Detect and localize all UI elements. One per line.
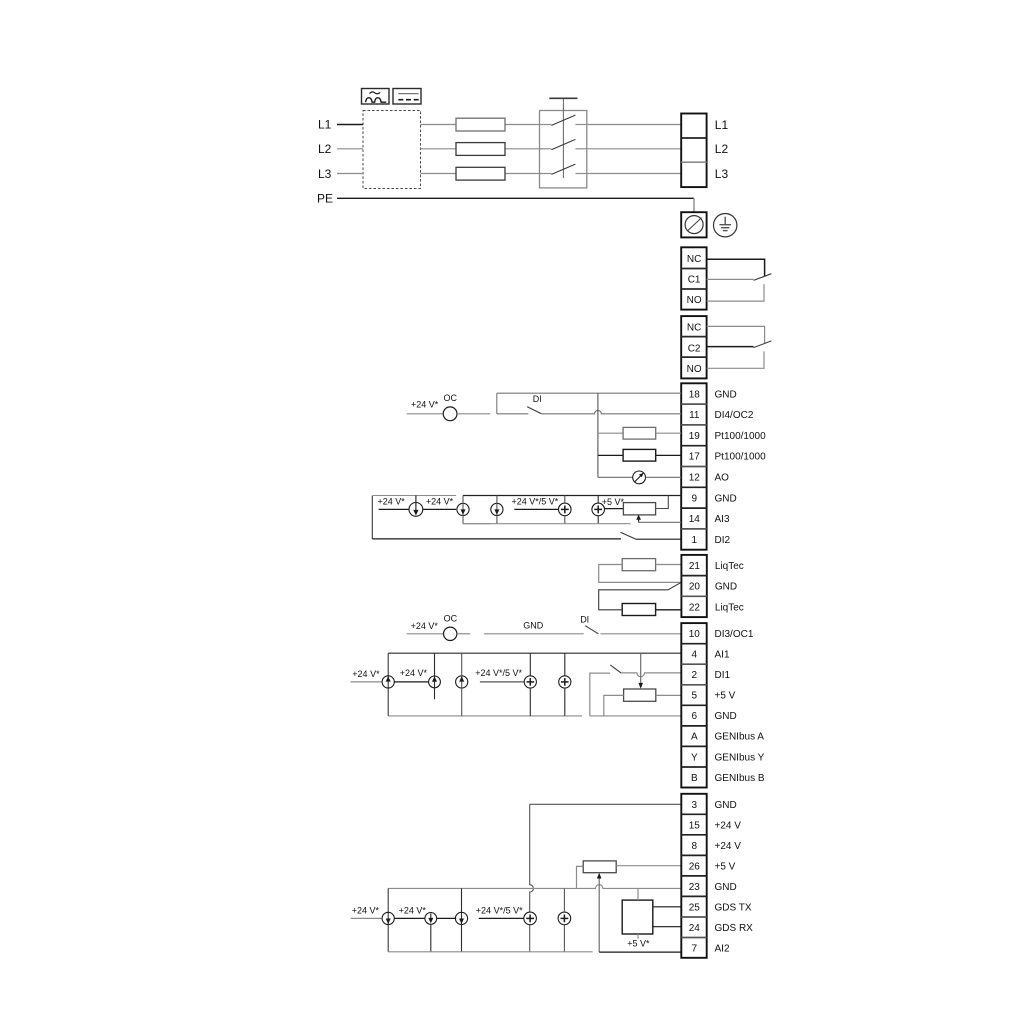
svg-text:21: 21 [689,561,701,572]
svg-text:+5 V: +5 V [715,691,736,702]
svg-text:25: 25 [689,902,701,913]
svg-text:L3: L3 [715,167,729,181]
svg-text:GENIbus B: GENIbus B [715,773,765,784]
svg-text:L1: L1 [715,118,729,132]
svg-text:L1: L1 [318,118,332,132]
svg-text:+24 V: +24 V [715,820,742,831]
svg-text:+24 V*: +24 V* [352,906,380,916]
svg-text:DI4/OC2: DI4/OC2 [715,410,754,421]
svg-text:9: 9 [692,493,698,504]
svg-text:11: 11 [689,410,700,421]
svg-text:L2: L2 [715,142,729,156]
svg-text:+24 V*: +24 V* [399,906,427,916]
svg-text:NO: NO [687,295,702,306]
svg-text:19: 19 [689,431,701,442]
svg-text:DI3/OC1: DI3/OC1 [715,629,754,640]
svg-text:L2: L2 [318,142,332,156]
svg-text:B: B [691,773,698,784]
svg-text:LiqTec: LiqTec [715,561,744,572]
svg-text:C1: C1 [688,275,701,286]
svg-text:18: 18 [689,389,701,400]
svg-text:2: 2 [692,670,698,681]
svg-text:+24 V*: +24 V* [400,668,428,678]
svg-text:22: 22 [689,602,701,613]
svg-text:GND: GND [715,389,737,400]
svg-text:6: 6 [692,711,698,722]
svg-text:1: 1 [692,535,698,546]
svg-text:+24 V*/5 V*: +24 V*/5 V* [476,906,523,916]
svg-text:GENIbus A: GENIbus A [715,732,765,743]
svg-text:DI: DI [533,394,542,404]
svg-text:GDS RX: GDS RX [715,923,754,934]
svg-text:3: 3 [692,800,698,811]
svg-text:+5 V*: +5 V* [627,939,650,949]
svg-text:GND: GND [715,493,737,504]
svg-text:C2: C2 [688,343,701,354]
svg-text:DI1: DI1 [715,670,731,681]
svg-text:DI2: DI2 [715,535,731,546]
svg-text:GND: GND [715,882,737,893]
svg-text:AO: AO [715,473,730,484]
svg-text:OC: OC [444,613,458,623]
svg-text:DI: DI [580,615,589,625]
svg-text:A: A [691,732,698,743]
svg-text:OC: OC [444,393,458,403]
svg-text:24: 24 [689,923,701,934]
svg-text:GND: GND [715,800,737,811]
svg-text:Pt100/1000: Pt100/1000 [715,431,767,442]
svg-text:Pt100/1000: Pt100/1000 [715,452,767,463]
svg-text:7: 7 [692,944,698,955]
svg-text:+24 V*/5 V*: +24 V*/5 V* [512,497,559,507]
svg-text:AI3: AI3 [715,514,730,525]
svg-text:26: 26 [689,861,701,872]
svg-text:10: 10 [689,629,701,640]
svg-text:15: 15 [689,820,701,831]
svg-text:+5 V: +5 V [715,861,736,872]
svg-text:AI2: AI2 [715,944,730,955]
svg-text:L3: L3 [318,167,332,181]
svg-text:+24 V*: +24 V* [411,400,439,410]
svg-text:GND: GND [523,620,544,630]
svg-text:14: 14 [689,514,701,525]
svg-text:+5 V*: +5 V* [602,497,625,507]
svg-text:12: 12 [689,473,701,484]
svg-text:NC: NC [687,323,701,334]
svg-text:+24 V*/5 V*: +24 V*/5 V* [475,668,522,678]
svg-text:GDS TX: GDS TX [715,902,752,913]
svg-text:17: 17 [689,452,701,463]
svg-text:AI1: AI1 [715,650,730,661]
svg-text:PE: PE [317,192,333,206]
svg-text:23: 23 [689,882,701,893]
svg-text:20: 20 [689,582,701,593]
svg-text:GND: GND [715,582,737,593]
svg-text:4: 4 [692,650,698,661]
svg-text:8: 8 [692,841,698,852]
svg-text:LiqTec: LiqTec [715,602,744,613]
svg-text:GND: GND [715,711,737,722]
svg-text:+24 V: +24 V [715,841,742,852]
svg-text:NO: NO [687,364,702,375]
svg-text:Y: Y [691,752,698,763]
svg-text:+24 V*: +24 V* [411,621,439,631]
svg-text:+24 V*: +24 V* [378,497,406,507]
svg-text:NC: NC [687,254,701,265]
svg-text:GENIbus Y: GENIbus Y [715,752,765,763]
svg-text:5: 5 [692,691,698,702]
svg-text:+24 V*: +24 V* [426,497,454,507]
svg-text:+24 V*: +24 V* [352,669,380,679]
